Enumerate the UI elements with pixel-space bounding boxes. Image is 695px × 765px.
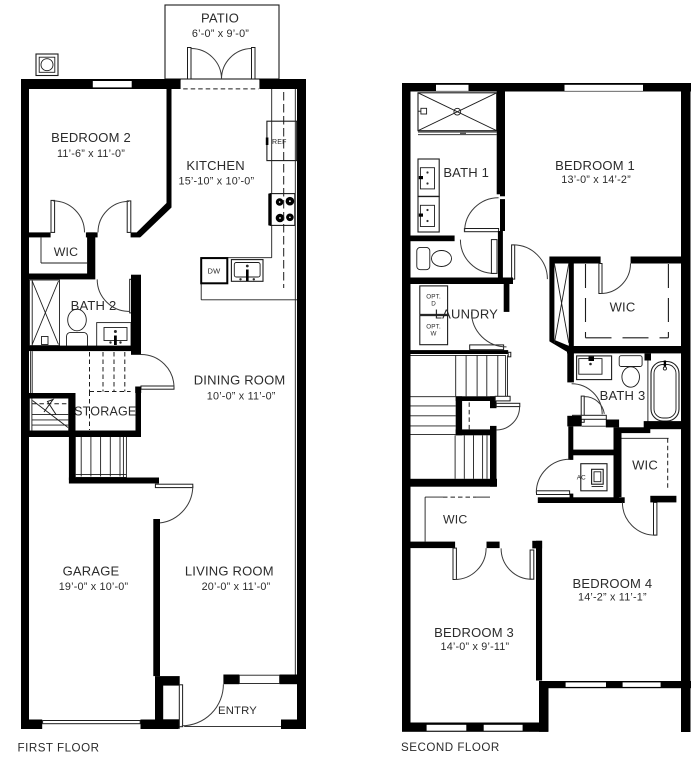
svg-text:15’-10” x 10’-0”: 15’-10” x 10’-0” xyxy=(178,176,254,188)
svg-text:WIC: WIC xyxy=(632,458,658,473)
svg-text:LIVING ROOM: LIVING ROOM xyxy=(185,564,274,579)
svg-text:PATIO: PATIO xyxy=(201,11,239,26)
svg-text:11’-6” x 11’-0”: 11’-6” x 11’-0” xyxy=(57,148,125,160)
svg-text:BEDROOM 2: BEDROOM 2 xyxy=(51,130,131,145)
svg-text:GARAGE: GARAGE xyxy=(63,564,120,579)
svg-text:BATH 2: BATH 2 xyxy=(71,298,117,313)
svg-text:D: D xyxy=(431,301,436,308)
svg-text:ENTRY: ENTRY xyxy=(218,705,257,717)
svg-text:BEDROOM 3: BEDROOM 3 xyxy=(434,625,514,640)
svg-text:OPT.: OPT. xyxy=(426,294,441,301)
svg-text:10’-0” x 11’-0”: 10’-0” x 11’-0” xyxy=(207,391,276,403)
svg-text:14’-2” x 11’-1”: 14’-2” x 11’-1” xyxy=(578,592,647,604)
svg-text:WIC: WIC xyxy=(54,245,79,259)
svg-text:BEDROOM 1: BEDROOM 1 xyxy=(555,158,635,173)
svg-text:6’-0” x 9’-0”: 6’-0” x 9’-0” xyxy=(192,28,249,40)
svg-text:KITCHEN: KITCHEN xyxy=(186,158,244,173)
svg-text:DW: DW xyxy=(208,267,222,276)
svg-text:WIC: WIC xyxy=(443,513,468,527)
svg-text:BATH 1: BATH 1 xyxy=(443,165,489,180)
svg-text:20’-0” x 11’-0”: 20’-0” x 11’-0” xyxy=(202,581,271,593)
svg-text:SECOND FLOOR: SECOND FLOOR xyxy=(401,741,500,754)
svg-text:FIRST FLOOR: FIRST FLOOR xyxy=(18,742,100,755)
svg-text:OPT.: OPT. xyxy=(426,324,441,331)
svg-text:BEDROOM 4: BEDROOM 4 xyxy=(572,576,652,591)
svg-text:WIC: WIC xyxy=(610,300,636,315)
svg-text:14’-0” x 9’-11”: 14’-0” x 9’-11” xyxy=(440,641,509,653)
svg-text:W: W xyxy=(431,331,437,338)
svg-text:13’-0” x 14’-2”: 13’-0” x 14’-2” xyxy=(561,174,631,186)
svg-text:REF: REF xyxy=(272,139,287,146)
svg-text:DINING ROOM: DINING ROOM xyxy=(194,373,286,388)
svg-text:AC: AC xyxy=(577,474,586,481)
svg-text:STORAGE: STORAGE xyxy=(74,405,136,419)
svg-text:19’-0” x 10’-0”: 19’-0” x 10’-0” xyxy=(59,581,129,593)
svg-text:BATH 3: BATH 3 xyxy=(600,388,646,403)
